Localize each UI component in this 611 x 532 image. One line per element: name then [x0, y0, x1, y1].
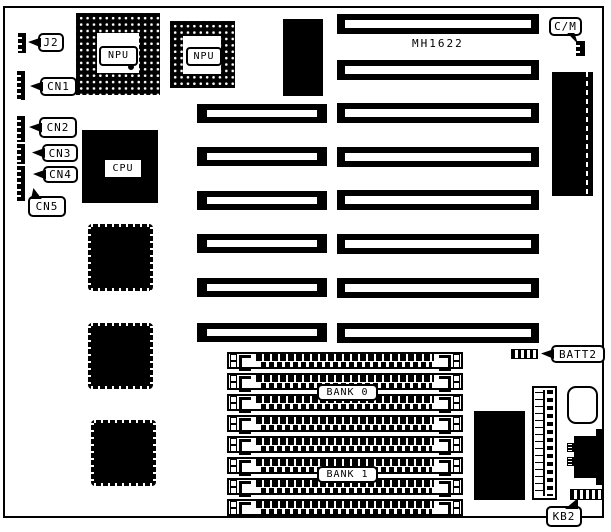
simm-latch-icon: [439, 439, 451, 455]
simm-latch-icon: [239, 376, 251, 392]
simm-latch-icon: [239, 439, 251, 455]
bank1-label: BANK 1: [317, 466, 378, 483]
batt2-label: BATT2: [559, 349, 597, 360]
simm-pin: [453, 361, 460, 368]
cn5-pin-header: [17, 185, 25, 201]
simm-latch-icon: [239, 418, 251, 434]
cn5-label: CN5: [36, 201, 59, 212]
simm-contacts: [256, 459, 434, 466]
simm-pin: [230, 382, 237, 389]
cn4-callout: CN4: [43, 166, 78, 183]
simm-contacts: [256, 375, 434, 382]
simm-pin: [453, 375, 460, 382]
simm-contacts: [256, 354, 434, 361]
simm-socket-4: [227, 415, 463, 432]
cm-callout: C/M: [549, 17, 582, 36]
simm-contacts: [256, 417, 434, 424]
qfp-chip-3: [91, 420, 156, 486]
simm-latch-icon: [439, 460, 451, 476]
isa-slot-right-6: [337, 234, 539, 254]
simm-latch-icon: [239, 502, 251, 518]
simm-pin: [453, 487, 460, 494]
simm-pin: [230, 466, 237, 473]
cn3-label: CN3: [49, 148, 72, 159]
simm-pin: [453, 424, 460, 431]
edge-connector-chip: [552, 72, 593, 196]
simm-pin: [453, 508, 460, 515]
simm-contacts: [256, 501, 434, 508]
simm-latch-icon: [239, 355, 251, 371]
kb2-label: KB2: [553, 511, 576, 522]
isa-slot-right-4: [337, 147, 539, 167]
isa-slot-right-5: [337, 190, 539, 210]
qfp-chip-2: [88, 323, 153, 389]
simm-latch-icon: [439, 355, 451, 371]
j2-pin-header: [18, 33, 26, 53]
isa-slot-left-2: [197, 147, 327, 166]
simm-pin: [453, 382, 460, 389]
isa-slot-left-6: [197, 323, 327, 342]
isa-slot-left-1: [197, 104, 327, 123]
battery-outline: [567, 386, 598, 424]
simm-pin: [453, 480, 460, 487]
simm-pin: [230, 501, 237, 508]
simm-pin: [230, 459, 237, 466]
simm-pin: [453, 445, 460, 452]
simm-contacts: [258, 362, 432, 367]
cn1-label: CN1: [47, 81, 70, 92]
j2-label: J2: [43, 37, 58, 48]
simm-pin: [230, 424, 237, 431]
simm-contacts: [258, 425, 432, 430]
isa-slot-right-1: [337, 14, 539, 34]
kb2-pin-header: [570, 489, 602, 500]
power-connector-pins: [547, 390, 553, 496]
simm-contacts: [258, 446, 432, 451]
isa-slot-left-5: [197, 278, 327, 297]
cn4-label: CN4: [49, 169, 72, 180]
isa-slot-right-2: [337, 60, 539, 80]
simm-pin: [230, 417, 237, 424]
simm-pin: [230, 403, 237, 410]
simm-latch-icon: [439, 397, 451, 413]
isa-slot-right-7: [337, 278, 539, 298]
simm-contacts: [256, 438, 434, 445]
batt2-pin-header: [511, 349, 538, 359]
isa-slot-left-3: [197, 191, 327, 210]
simm-pin: [453, 438, 460, 445]
simm-latch-icon: [239, 397, 251, 413]
simm-pin: [453, 459, 460, 466]
support-chip-top: [283, 19, 323, 96]
bank1-text: BANK 1: [326, 470, 368, 480]
cm-label: C/M: [554, 21, 577, 32]
cn4-pin-header: [17, 166, 25, 185]
batt2-callout: BATT2: [551, 345, 605, 363]
simm-contacts: [258, 404, 432, 409]
simm-contacts: [258, 509, 432, 514]
simm-latch-icon: [439, 376, 451, 392]
npu1-pga-socket: NPU: [76, 13, 160, 95]
simm-latch-icon: [439, 502, 451, 518]
simm-pin: [230, 375, 237, 382]
power-connector-housing: [535, 390, 545, 496]
simm-latch-icon: [439, 481, 451, 497]
bank0-label: BANK 0: [317, 384, 378, 401]
simm-latch-icon: [239, 481, 251, 497]
din-mount-tab-icon: [567, 457, 575, 466]
cn1-pin-header: [17, 71, 25, 100]
simm-pin: [230, 438, 237, 445]
simm-socket-5: [227, 436, 463, 453]
isa-slot-left-4: [197, 234, 327, 253]
simm-pin: [230, 361, 237, 368]
kb2-callout: KB2: [546, 506, 582, 527]
npu1-text: NPU: [108, 51, 129, 61]
simm-pin: [230, 396, 237, 403]
simm-pin: [230, 480, 237, 487]
bank0-text: BANK 0: [326, 388, 368, 398]
cn5-callout: CN5: [28, 196, 66, 217]
cn2-label: CN2: [47, 122, 70, 133]
npu2-text: NPU: [193, 52, 214, 62]
simm-pin: [453, 501, 460, 508]
simm-pin: [453, 403, 460, 410]
simm-pin: [453, 466, 460, 473]
simm-pin: [453, 396, 460, 403]
simm-latch-icon: [239, 460, 251, 476]
npu2-chip-label: NPU: [186, 47, 222, 66]
cpu-chip-label: CPU: [103, 158, 143, 179]
simm-latch-icon: [439, 418, 451, 434]
motherboard-diagram: J2 CN1 CN2 CN3 CN4 CN5 NPU NPU CP: [0, 0, 611, 532]
npu2-pga-socket: NPU: [170, 21, 235, 88]
simm-socket-1: [227, 352, 463, 369]
simm-pin: [230, 508, 237, 515]
simm-pin: [230, 487, 237, 494]
cn3-callout: CN3: [42, 144, 78, 162]
j2-callout: J2: [38, 33, 64, 52]
cn2-pin-header: [17, 116, 25, 142]
simm-pin: [453, 354, 460, 361]
simm-pin: [230, 354, 237, 361]
cn2-callout: CN2: [39, 117, 77, 138]
cpu-chip: CPU: [82, 130, 158, 203]
qfp-chip-1: [88, 224, 153, 291]
simm-contacts: [258, 488, 432, 493]
simm-pin: [230, 445, 237, 452]
power-connector: [532, 386, 557, 500]
isa-slot-right-8: [337, 323, 539, 343]
din-mount-tab-icon: [567, 443, 575, 452]
board-model-text: MH1622: [412, 38, 464, 49]
support-chip-bottom-right: [474, 411, 525, 500]
simm-socket-8: [227, 499, 463, 516]
cpu-text: CPU: [112, 164, 133, 174]
isa-slot-right-3: [337, 103, 539, 123]
cn1-callout: CN1: [40, 77, 77, 96]
cn3-pin-header: [17, 144, 25, 164]
simm-pin: [453, 417, 460, 424]
npu1-chip-label: NPU: [99, 46, 138, 66]
keyboard-din-connector: [574, 436, 604, 478]
